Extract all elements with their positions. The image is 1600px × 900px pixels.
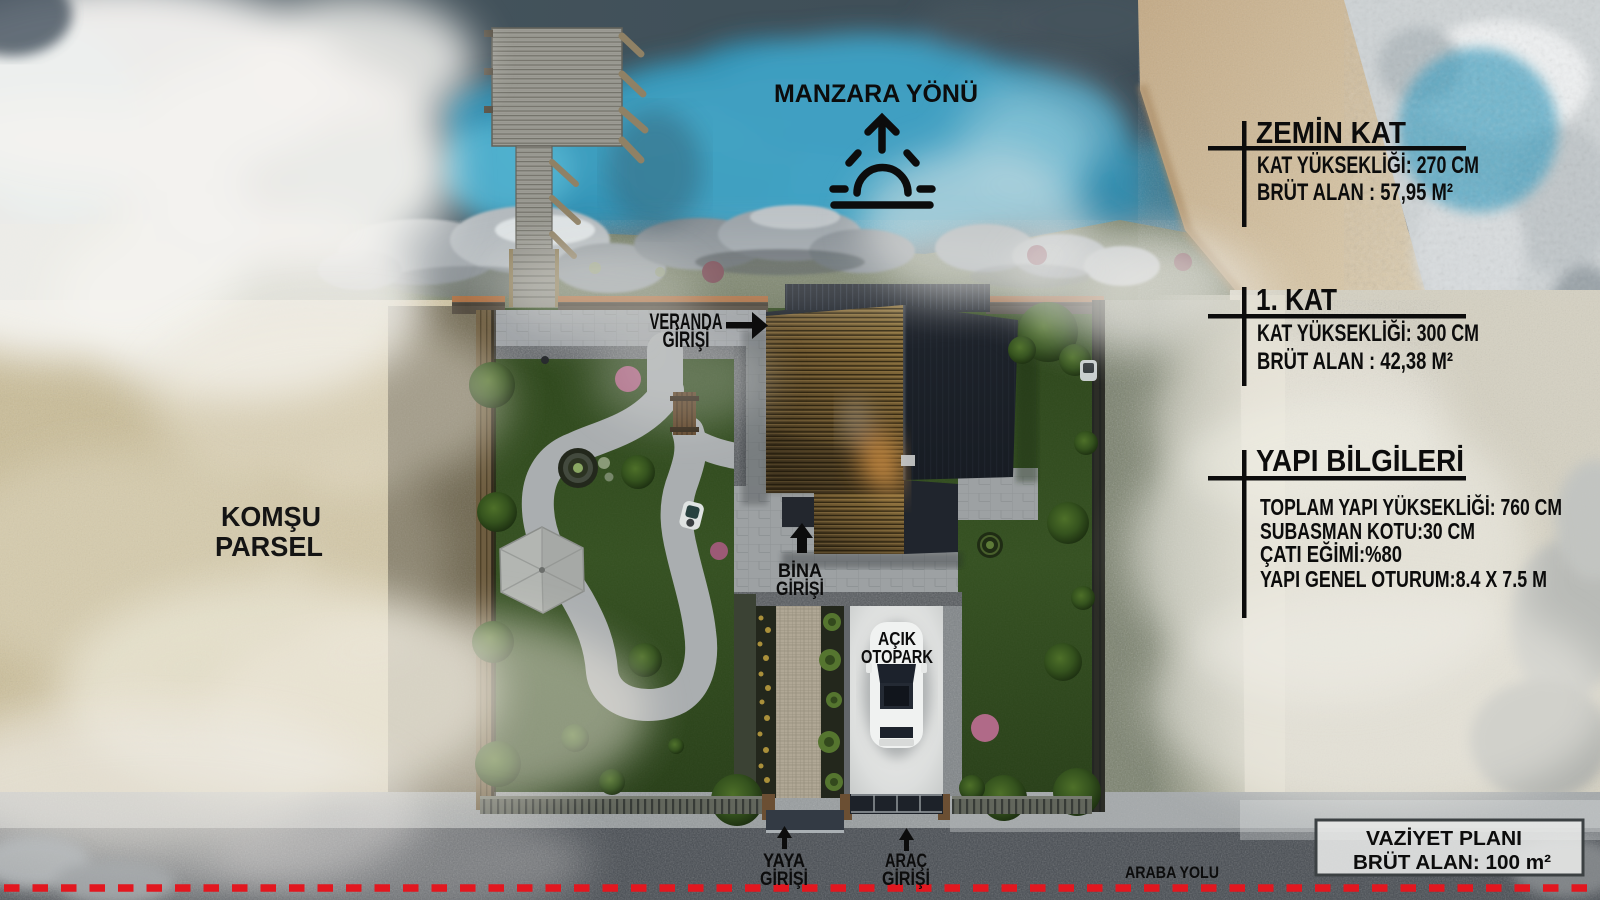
svg-text:OTOPARK: OTOPARK — [861, 647, 933, 667]
svg-text:GİRİŞİ: GİRİŞİ — [882, 869, 930, 890]
svg-text:AÇIK: AÇIK — [878, 629, 916, 649]
svg-text:GİRİŞİ: GİRİŞİ — [663, 327, 710, 352]
svg-text:1. KAT: 1. KAT — [1256, 282, 1337, 317]
svg-text:PARSEL: PARSEL — [215, 531, 323, 562]
svg-text:TOPLAM YAPI YÜKSEKLİĞİ: 760 CM: TOPLAM YAPI YÜKSEKLİĞİ: 760 CM — [1260, 493, 1562, 520]
svg-text:GİRİŞİ: GİRİŞİ — [776, 579, 824, 600]
svg-text:MANZARA YÖNÜ: MANZARA YÖNÜ — [774, 79, 978, 108]
svg-text:ÇATI EĞİMİ:%80: ÇATI EĞİMİ:%80 — [1260, 540, 1402, 567]
svg-text:KOMŞU: KOMŞU — [221, 501, 321, 532]
svg-text:ZEMİN KAT: ZEMİN KAT — [1256, 115, 1406, 150]
svg-text:VAZİYET PLANI: VAZİYET PLANI — [1366, 827, 1522, 850]
svg-text:ARABA YOLU: ARABA YOLU — [1125, 863, 1219, 882]
svg-text:BRÜT ALAN : 57,95 M²: BRÜT ALAN : 57,95 M² — [1257, 179, 1453, 206]
svg-text:KAT YÜKSEKLİĞİ: 300 CM: KAT YÜKSEKLİĞİ: 300 CM — [1257, 319, 1479, 347]
svg-text:GİRİŞİ: GİRİŞİ — [760, 869, 808, 890]
svg-text:BRÜT ALAN: 100 m²: BRÜT ALAN: 100 m² — [1353, 851, 1551, 874]
svg-text:YAPI BİLGİLERİ: YAPI BİLGİLERİ — [1256, 443, 1464, 478]
svg-text:YAPI GENEL OTURUM:8.4 X 7.5 M: YAPI GENEL OTURUM:8.4 X 7.5 M — [1260, 566, 1547, 592]
svg-text:KAT YÜKSEKLİĞİ: 270 CM: KAT YÜKSEKLİĞİ: 270 CM — [1257, 151, 1479, 179]
svg-text:BRÜT ALAN : 42,38 M²: BRÜT ALAN : 42,38 M² — [1257, 348, 1453, 375]
